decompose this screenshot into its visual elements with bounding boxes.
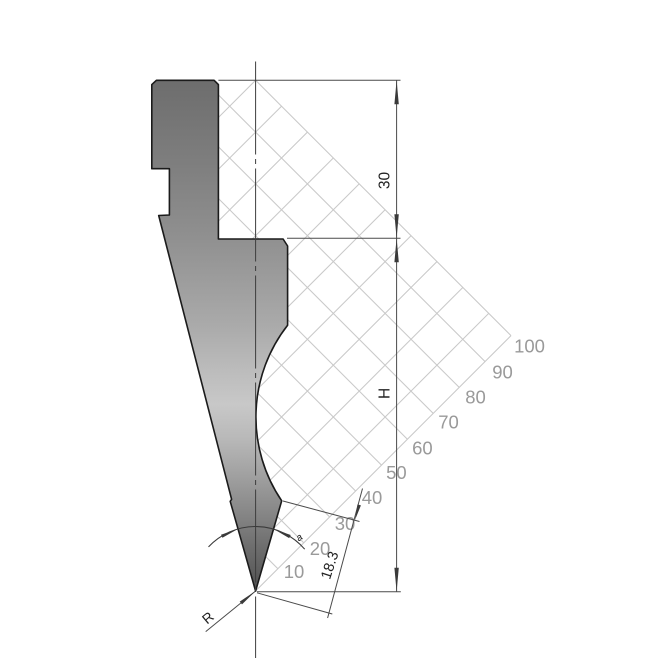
svg-text:60: 60 xyxy=(412,438,433,459)
svg-text:30: 30 xyxy=(376,172,393,190)
svg-text:40: 40 xyxy=(362,487,383,508)
svg-text:10: 10 xyxy=(284,561,305,582)
svg-text:80: 80 xyxy=(465,387,486,408)
svg-text:100: 100 xyxy=(514,336,545,357)
svg-text:70: 70 xyxy=(438,412,459,433)
svg-text:H: H xyxy=(377,388,394,399)
svg-text:90: 90 xyxy=(492,362,513,383)
